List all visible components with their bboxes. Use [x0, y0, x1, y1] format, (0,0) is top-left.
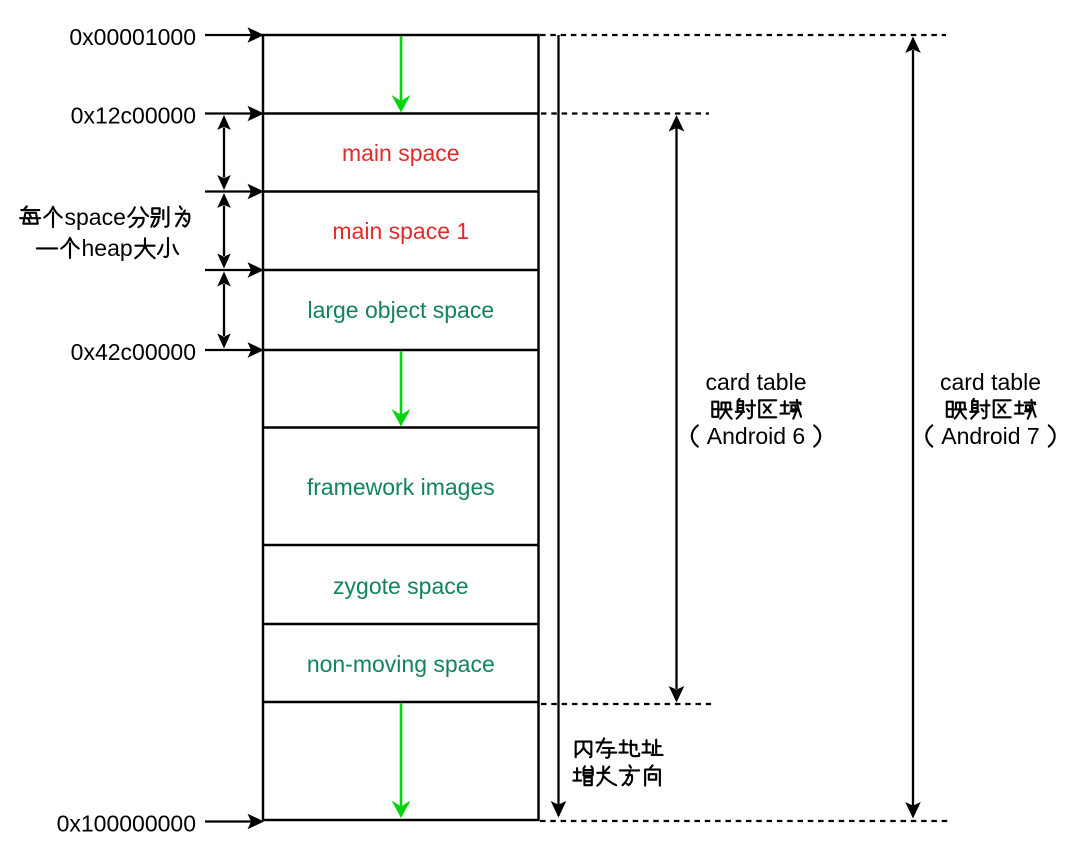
- svg-text:card table: card table: [940, 369, 1041, 395]
- svg-text:main space: main space: [342, 140, 460, 166]
- svg-text:heap: heap: [82, 235, 133, 261]
- svg-text:main space 1: main space 1: [332, 218, 469, 244]
- svg-text:framework images: framework images: [307, 474, 495, 500]
- svg-text:space: space: [65, 204, 126, 230]
- svg-text:0x12c00000: 0x12c00000: [71, 103, 196, 129]
- svg-text:non-moving space: non-moving space: [307, 651, 495, 677]
- svg-text:zygote space: zygote space: [333, 573, 469, 599]
- svg-text:Android 7: Android 7: [941, 423, 1039, 449]
- svg-text:card table: card table: [705, 369, 806, 395]
- svg-text:large object space: large object space: [307, 297, 494, 323]
- svg-text:0x00001000: 0x00001000: [69, 24, 196, 50]
- svg-text:0x42c00000: 0x42c00000: [71, 339, 196, 365]
- svg-text:0x100000000: 0x100000000: [57, 811, 196, 837]
- svg-text:Android 6: Android 6: [707, 423, 805, 449]
